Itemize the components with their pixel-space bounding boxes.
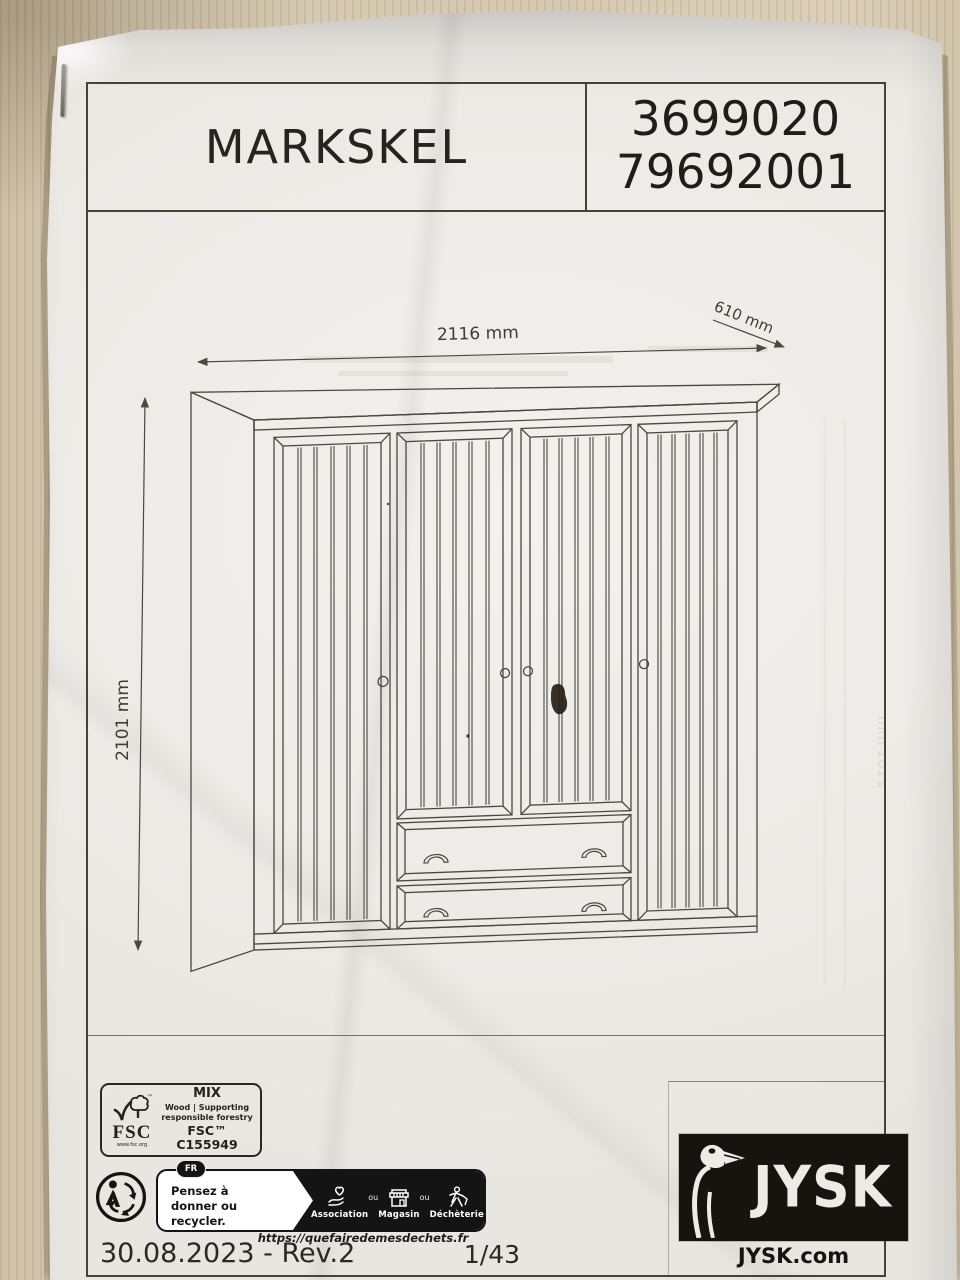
door-3 [521,425,631,815]
door-2 [397,429,512,819]
brand-cell: JYSK JYSK.com [668,1081,884,1275]
fsc-url: www.fsc.org [117,1143,147,1148]
date-revision: 30.08.2023 - Rev.2 [100,1238,355,1269]
fr-country-badge: FR [176,1160,206,1178]
showthrough-height-label: 2101 mm [874,716,884,788]
cabinet-front-face [254,402,757,950]
recycle-message-line2: donner ou recycler. [171,1199,293,1229]
fsc-logo-column: ™ FSC www.fsc.org [106,1093,158,1148]
fsc-claim-line1: Wood | Supporting [165,1103,249,1112]
fr-badge-text: FR [185,1164,197,1174]
ou-separator-1: ou [368,1193,378,1202]
svg-text:™: ™ [147,1094,152,1101]
fsc-mix-label: MIX [193,1087,221,1102]
store-icon [386,1185,412,1209]
waste-center-icon [443,1185,470,1209]
drawer-cup-handles [424,848,606,917]
option-magasin: Magasin [378,1185,419,1220]
page-indicator: 1/43 [392,1240,592,1269]
page-frame: MARKSKEL 3699020 79692001 2101 mm [86,82,886,1277]
hand-heart-icon [326,1185,353,1209]
fsc-text-column: MIX Wood | Supporting responsible forest… [158,1087,256,1152]
paper-sheet: MARKSKEL 3699020 79692001 2101 mm [0,0,960,1280]
jysk-website: JYSK.com [679,1244,908,1268]
cabinet-bottom-rails [254,916,757,944]
fsc-label: ™ FSC www.fsc.org MIX Wood | Supporting … [100,1083,262,1157]
cabinet-left-side [191,390,254,971]
fsc-tree-icon: ™ [112,1093,152,1123]
recycle-message-line1: Pensez à [171,1184,293,1199]
drawing-area-divider [88,1035,884,1036]
option-decheterie: Déchèterie [430,1185,484,1220]
door-knobs [378,659,649,686]
staple [60,64,65,117]
recycle-message: Pensez à donner ou recycler. [158,1171,293,1230]
height-dimension-line [138,398,145,950]
drawer-1 [397,815,631,881]
ou-separator-2: ou [420,1193,430,1202]
cabinet-top-edge-cap [757,384,779,412]
fsc-acronym: FSC [113,1123,152,1142]
jysk-logo: JYSK [679,1134,908,1241]
option-association: Association [311,1185,368,1220]
fsc-license-code: FSC™ C155949 [158,1124,256,1153]
door-1 [274,433,390,933]
door-4 [638,421,737,921]
height-dimension-label: 2101 mm [113,679,133,761]
cabinet-top-front-band [254,402,757,430]
option-decheterie-label: Déchèterie [430,1210,484,1220]
triman-recycle-icon [94,1170,148,1224]
photo-of-manual-on-desk: { "page": { "product_name": "MARKSKEL", … [0,0,960,1280]
fsc-claim-line2: responsible forestry [161,1113,252,1122]
option-magasin-label: Magasin [378,1210,419,1220]
recycle-banner: Pensez à donner ou recycler. Association… [156,1169,486,1232]
recycle-options: Association ou Magasin ou [293,1171,484,1230]
dimension-labels: 2116 mm 610 mm 2101 mm [113,297,776,761]
jysk-wordmark: JYSK [737,1155,908,1221]
width-dimension-label: 2116 mm [437,323,519,345]
option-association-label: Association [311,1210,368,1220]
ink-stain [387,503,567,738]
cabinet-lines [138,320,784,971]
